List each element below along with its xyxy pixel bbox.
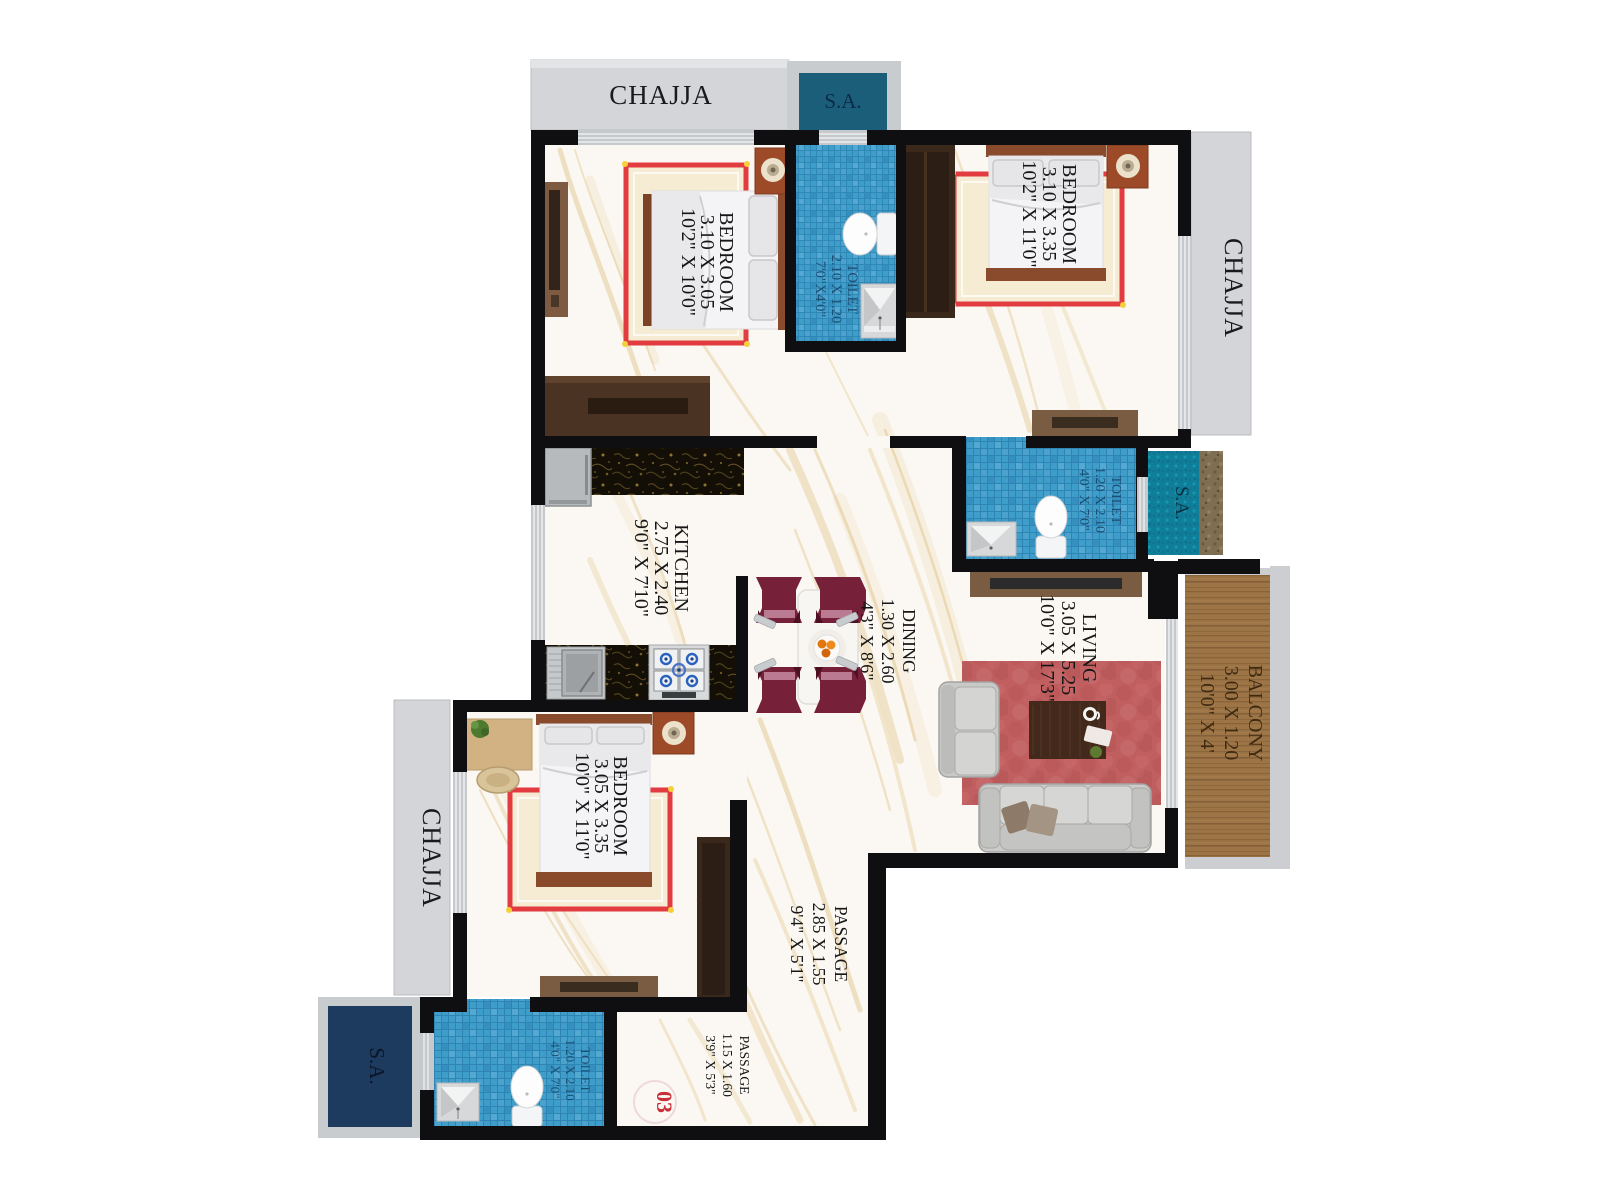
svg-text:PASSAGE1.15 X 1.603'9" X 5'3": PASSAGE1.15 X 1.603'9" X 5'3" (703, 1033, 752, 1097)
svg-text:03: 03 (652, 1091, 677, 1113)
svg-text:S.A.: S.A. (824, 89, 861, 113)
svg-text:S.A.: S.A. (1171, 486, 1192, 520)
svg-text:KITCHEN2.75 X 2.409'0" X 7'10": KITCHEN2.75 X 2.409'0" X 7'10" (630, 519, 692, 617)
svg-text:BALCONY3.00 X 1.2010'0" X 4': BALCONY3.00 X 1.2010'0" X 4' (1196, 665, 1266, 762)
svg-text:CHAJJA: CHAJJA (417, 808, 446, 908)
svg-text:BEDROOM3.05 X 3.3510'0" X 11'0: BEDROOM3.05 X 3.3510'0" X 11'0" (571, 752, 631, 859)
svg-text:TOILET2.10 X 1.207'0"X4'0": TOILET2.10 X 1.207'0"X4'0" (812, 255, 860, 323)
svg-text:PASSAGE2.85 X 1.559'4" X 5'1": PASSAGE2.85 X 1.559'4" X 5'1" (787, 903, 851, 986)
svg-text:CHAJJA: CHAJJA (609, 80, 713, 110)
svg-text:TOILET1.20 X 2.104'0" X 7'0": TOILET1.20 X 2.104'0" X 7'0" (1076, 467, 1123, 533)
svg-text:S.A.: S.A. (365, 1047, 389, 1084)
svg-text:TOILET1.20 X 2.104'0" X 7'0": TOILET1.20 X 2.104'0" X 7'0" (548, 1039, 593, 1100)
svg-text:DINING1.30 X 2.604'3" X 8'6": DINING1.30 X 2.604'3" X 8'6" (857, 599, 919, 684)
svg-text:BEDROOM3.10 X 3.0510'2" X 10'0: BEDROOM3.10 X 3.0510'2" X 10'0" (677, 208, 737, 316)
svg-text:BEDROOM3.10 X 3.3510'2" X 11'0: BEDROOM3.10 X 3.3510'2" X 11'0" (1018, 160, 1080, 267)
svg-text:CHAJJA: CHAJJA (1219, 238, 1248, 338)
